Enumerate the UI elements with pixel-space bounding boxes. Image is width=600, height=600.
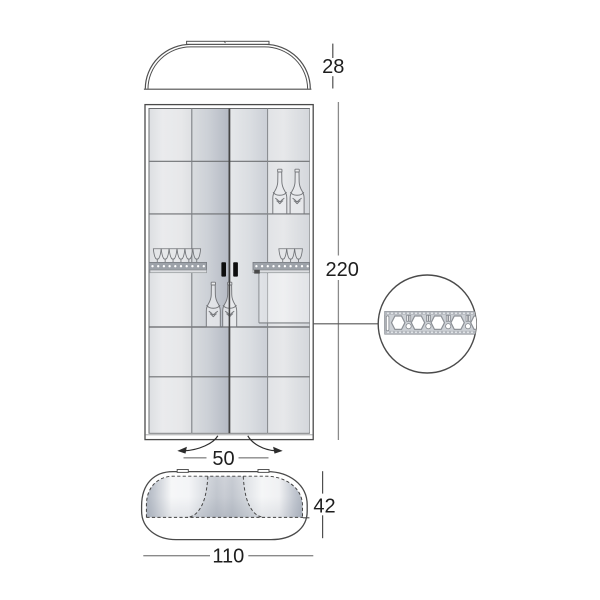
svg-text:50: 50 bbox=[212, 448, 234, 470]
svg-text:28: 28 bbox=[322, 56, 344, 78]
svg-text:110: 110 bbox=[212, 545, 244, 567]
svg-text:42: 42 bbox=[313, 496, 335, 518]
svg-text:220: 220 bbox=[326, 259, 359, 281]
